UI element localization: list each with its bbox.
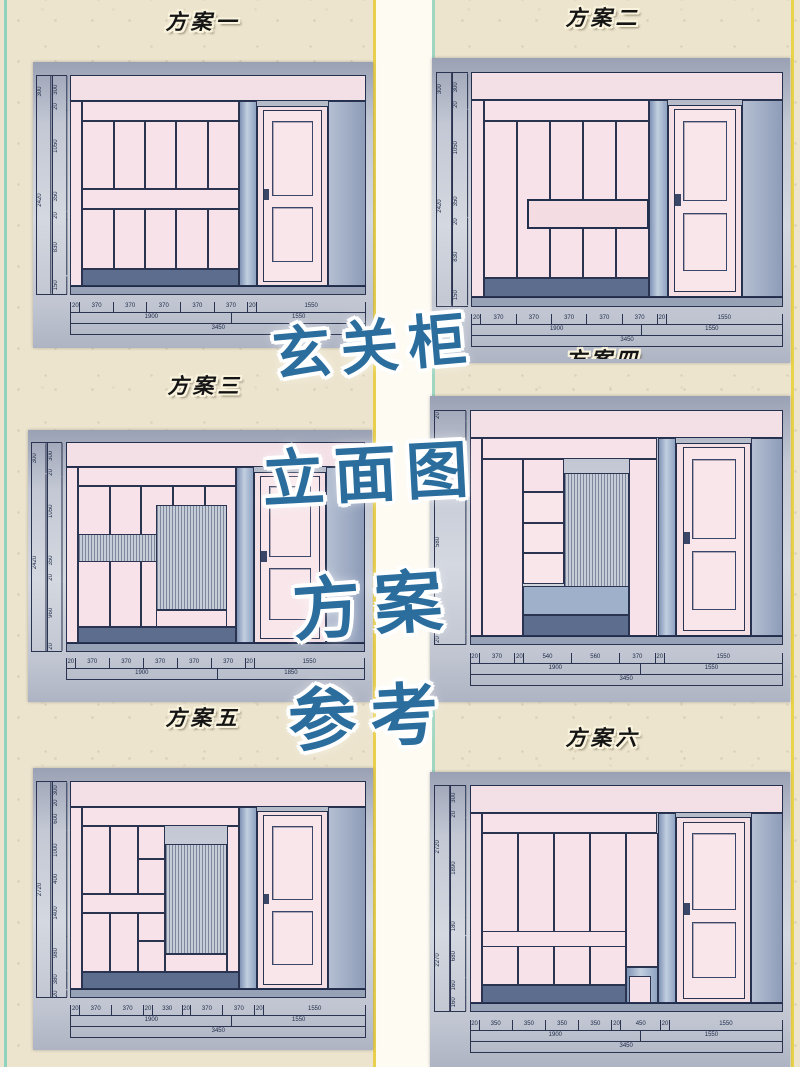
cabinet-door (82, 826, 110, 893)
dimension-label: 370 (178, 658, 212, 668)
cabinet-door (145, 209, 176, 268)
cabinet-elevation (471, 72, 782, 307)
dimension-label: 370 (215, 302, 249, 312)
door-handle (684, 532, 690, 544)
dimension-label: 370 (191, 1005, 223, 1015)
dimension-label: 370 (80, 1005, 112, 1015)
panel-title-6: 方案六 (493, 722, 713, 752)
cabinet-door (208, 121, 239, 189)
door-handle (684, 903, 690, 914)
floor (471, 297, 782, 306)
open-shelf (523, 553, 564, 584)
dimension-label: 2420 (437, 106, 452, 306)
left-dimension-strip: 3002420 3002010503502096020 (31, 442, 62, 651)
left-wall (471, 100, 483, 297)
dimension-label: 380 (53, 970, 67, 989)
left-dimension-strip: 2720 300206001000400140098038020 (36, 781, 67, 998)
panel-title-5: 方案五 (93, 702, 313, 732)
tall-door (482, 459, 523, 636)
dimension-label: 370 (552, 314, 587, 324)
dimension-label: 350 (453, 186, 468, 217)
dimension-label: 2720 (37, 782, 51, 997)
passage-column (658, 813, 677, 1004)
elevation-drawing-6: 27202270 300201890180680160160 203503503… (430, 772, 790, 1067)
panel-title-2: 方案二 (493, 2, 713, 32)
overlay-caption-line-2: 立面图 (260, 418, 480, 519)
slat-panel (564, 473, 630, 593)
cabinet-door (482, 833, 518, 985)
dimension-label: 450 (621, 1020, 661, 1030)
cabinet-elevation (70, 75, 366, 295)
left-wall (470, 813, 483, 1004)
dimension-label: 370 (480, 653, 516, 663)
upper-box (523, 459, 564, 492)
dimension-label: 2420 (37, 107, 51, 294)
slim-door (227, 826, 239, 971)
bench-base (523, 615, 629, 636)
cabinet-door (114, 121, 145, 189)
cabinet-door (208, 209, 239, 268)
dimension-label: 2270 (435, 908, 450, 1012)
elevation-drawing-4: 2038058020020 2037020540560370201550 190… (430, 396, 790, 702)
dimension-label: 20 (451, 810, 466, 818)
dimension-label: 180 (451, 917, 466, 935)
door-handle (264, 189, 270, 200)
cabinet-elevation (470, 410, 783, 646)
dimension-label: 370 (223, 1005, 255, 1015)
dimension-label: 1900 (66, 669, 218, 679)
dimension-label: 370 (623, 314, 658, 324)
dimension-label: 20 (48, 574, 62, 582)
dimension-label: 350 (48, 546, 62, 575)
dimension-label: 20 (66, 658, 76, 668)
cabinet-mid-band (482, 931, 626, 947)
dimension-label: 1550 (670, 1020, 783, 1030)
door-panel-lower (692, 922, 736, 979)
dimension-label: 300 (453, 73, 468, 101)
floor (470, 1003, 783, 1012)
door-panel-upper (272, 826, 313, 900)
door-panel-upper (692, 459, 736, 539)
left-wall (70, 101, 82, 286)
dimension-label: 830 (53, 219, 67, 275)
dimension-label: 20 (183, 1005, 192, 1015)
dimension-label: 20 (453, 218, 468, 226)
dimension-label: 830 (453, 226, 468, 287)
dimension-label: 370 (147, 302, 181, 312)
dimension-label: 20 (144, 1005, 153, 1015)
door-panel-lower (272, 911, 313, 965)
dimension-label: 350 (546, 1020, 579, 1030)
cabinet-kick (82, 972, 239, 989)
cabinet-door (518, 833, 554, 985)
dimension-label: 600 (53, 806, 67, 831)
dimension-label: 20 (658, 314, 667, 324)
floor (70, 286, 366, 295)
cabinet-box (138, 859, 165, 894)
dimension-label: 300 (48, 443, 62, 469)
cabinet-door (82, 913, 110, 972)
passage-column (658, 438, 677, 636)
dimension-label: 980 (53, 936, 67, 970)
dimension-label: 3450 (70, 1027, 366, 1037)
dimension-label: 370 (114, 302, 148, 312)
slat-band (78, 534, 162, 561)
cabinet-top-band (482, 813, 657, 833)
open-shelf (523, 523, 564, 554)
dimension-label: 350 (513, 1020, 546, 1030)
door-handle (675, 194, 681, 206)
dimension-label: 20 (470, 653, 480, 663)
top-beam (470, 410, 783, 438)
door-panel-lower (683, 213, 727, 272)
dimension-label: 1550 (232, 1016, 366, 1026)
side-wall (742, 100, 782, 297)
dimension-label: 1900 (70, 313, 232, 323)
top-beam (70, 781, 366, 807)
cabinet-elevation (70, 781, 366, 998)
dimension-label: 370 (517, 314, 552, 324)
cabinet-door (114, 209, 145, 268)
door-panel-lower (692, 551, 736, 610)
dimension-label: 1900 (70, 1016, 232, 1026)
dimension-label: 540 (524, 653, 571, 663)
left-wall (70, 807, 82, 989)
side-wall (751, 438, 782, 636)
cabinet-door (110, 826, 138, 893)
dimension-label: 20 (70, 302, 80, 312)
dimension-label: 370 (587, 314, 622, 324)
dimension-label: 1550 (642, 325, 783, 335)
floor (70, 989, 366, 998)
dimension-label: 370 (110, 658, 144, 668)
dimension-label: 370 (76, 658, 110, 668)
dimension-label: 1050 (453, 109, 468, 186)
overlay-caption-line-3: 方案 (289, 544, 460, 654)
passage-column (239, 101, 257, 286)
dimension-label: 300 (37, 76, 51, 108)
dimension-label: 20 (48, 643, 62, 651)
elevation-drawing-5: 2720 300206001000400140098038020 2037037… (33, 768, 373, 1050)
panel-title-4: 方案四 (493, 344, 713, 359)
door-panel-upper (272, 121, 313, 196)
dimension-label: 300 (32, 443, 46, 473)
dimension-label: 1550 (641, 664, 783, 674)
cabinet-top-band (82, 101, 239, 121)
cabinet-kick (82, 269, 239, 287)
right-edge-line (791, 0, 794, 1067)
niche-base (156, 610, 228, 627)
cabinet-door (145, 121, 176, 189)
dimension-label: 1900 (470, 1031, 641, 1041)
dimension-label: 370 (620, 653, 656, 663)
dimension-label: 350 (579, 1020, 612, 1030)
tall-door (629, 459, 657, 636)
bottom-dimension-strip: 2035035035035020450201550 19001550 3450 (470, 1020, 783, 1058)
stool (629, 976, 651, 1003)
cabinet-door (176, 209, 207, 268)
dimension-label: 3450 (470, 675, 783, 685)
dimension-label: 2720 (435, 786, 450, 908)
dimension-label: 300 (53, 782, 67, 799)
cabinet-door (176, 121, 207, 189)
dimension-label: 20 (255, 1005, 264, 1015)
cabinet-top-band (82, 807, 239, 827)
dimension-label: 1050 (48, 477, 62, 546)
cabinet-door (554, 833, 590, 985)
dimension-label: 20 (515, 653, 524, 663)
column-gutter (373, 0, 435, 1067)
dimension-label: 20 (48, 469, 62, 477)
dimension-label: 1900 (470, 664, 641, 674)
poster-hallway-cabinet-elevations: { "poster": { "overlay_lines": ["玄关柜", "… (0, 0, 800, 1067)
dimension-label: 1900 (471, 325, 642, 335)
dimension-label: 160 (451, 994, 466, 1011)
side-wall (751, 813, 782, 1004)
cabinet-door (484, 121, 517, 278)
dimension-label: 20 (70, 1005, 80, 1015)
cabinet-kick (484, 278, 649, 297)
dimension-label: 1550 (665, 653, 783, 663)
left-dimension-strip: 3002420 30020105035020830150 (436, 72, 468, 307)
top-beam (470, 785, 783, 812)
left-wall (66, 467, 78, 643)
dimension-label: 350 (480, 1020, 513, 1030)
dimension-label: 20 (470, 1020, 480, 1030)
dimension-label: 1400 (53, 889, 67, 937)
cabinet-door (82, 121, 113, 189)
bottom-dimension-strip: 203703702033020370370201550 19001550 345… (70, 1005, 366, 1042)
dimension-label: 680 (451, 936, 466, 977)
cabinet-door (110, 913, 138, 972)
dimension-label: 350 (53, 182, 67, 212)
dimension-label: 300 (53, 76, 67, 103)
cabinet-top-band (484, 100, 649, 121)
bench-seat (523, 586, 629, 614)
slat-panel (156, 505, 228, 610)
top-beam (70, 75, 366, 101)
door-panel-upper (683, 121, 727, 201)
dimension-label: 3450 (470, 1042, 783, 1052)
dimension-label: 1050 (53, 110, 67, 182)
dimension-label: 1550 (641, 1031, 783, 1041)
cabinet-mid-band (82, 189, 239, 209)
dimension-label: 560 (572, 653, 620, 663)
dimension-label: 2420 (32, 474, 46, 651)
cabinet-elevation (470, 785, 783, 1012)
dimension-label: 20 (453, 101, 468, 109)
dimension-label: 370 (144, 658, 178, 668)
cabinet-mid-band (82, 894, 165, 914)
dimension-label: 370 (181, 302, 215, 312)
tall-door (626, 833, 657, 967)
cabinet-box (138, 941, 165, 971)
open-shelf (523, 492, 564, 523)
door-handle (264, 894, 270, 905)
passage-column (649, 100, 668, 297)
overlay-caption-line-1: 玄关柜 (269, 291, 480, 392)
cabinet-top-band (78, 467, 237, 486)
panel-title-1: 方案一 (93, 6, 313, 36)
side-wall (328, 101, 366, 286)
cabinet-kick (482, 985, 626, 1003)
left-edge-line (4, 0, 7, 1067)
overlay-caption-line-4: 参考 (286, 658, 455, 765)
dimension-label: 20 (661, 1020, 670, 1030)
dimension-label: 20 (53, 990, 67, 997)
dimension-label: 960 (48, 582, 62, 643)
dimension-label: 1550 (264, 1005, 366, 1015)
elevation-drawing-2: 3002420 30020105035020830150 20370370370… (432, 58, 790, 363)
passage-column (239, 807, 257, 989)
cabinet-box (138, 913, 165, 941)
dimension-label: 20 (656, 653, 665, 663)
dimension-label: 20 (246, 658, 255, 668)
floor (470, 636, 783, 645)
dimension-label: 160 (451, 977, 466, 994)
dimension-label: 330 (153, 1005, 183, 1015)
cabinet-door (590, 833, 626, 985)
left-dimension-strip: 27202270 300201890180680160160 (434, 785, 466, 1012)
dimension-label: 20 (248, 302, 257, 312)
door-handle (261, 551, 267, 561)
slat-base (165, 954, 227, 971)
slat-panel (165, 844, 227, 955)
display-niche (527, 199, 648, 230)
dimension-label: 370 (212, 658, 246, 668)
dimension-label: 370 (80, 302, 114, 312)
dimension-label: 370 (112, 1005, 144, 1015)
cabinet-door (82, 209, 113, 268)
top-beam (471, 72, 782, 100)
left-dimension-strip: 3002420 30020105035020830150 (36, 75, 67, 295)
cabinet-top-band (482, 438, 657, 459)
bottom-dimension-strip: 2037020540560370201550 19001550 3450 (470, 653, 783, 693)
passage-column (236, 467, 254, 643)
dimension-label: 300 (451, 786, 466, 810)
side-wall (328, 807, 366, 989)
dimension-label: 400 (53, 869, 67, 889)
dimension-label: 1550 (667, 314, 783, 324)
cabinet-box (138, 826, 165, 859)
door-panel-lower (272, 207, 313, 262)
dimension-label: 1000 (53, 831, 67, 869)
dimension-label: 370 (481, 314, 516, 324)
dimension-label: 150 (53, 276, 67, 294)
door-panel-upper (692, 833, 736, 910)
dimension-label: 1890 (451, 818, 466, 918)
cabinet-kick (78, 627, 237, 644)
dimension-label: 300 (437, 73, 452, 106)
dimension-label: 20 (612, 1020, 621, 1030)
